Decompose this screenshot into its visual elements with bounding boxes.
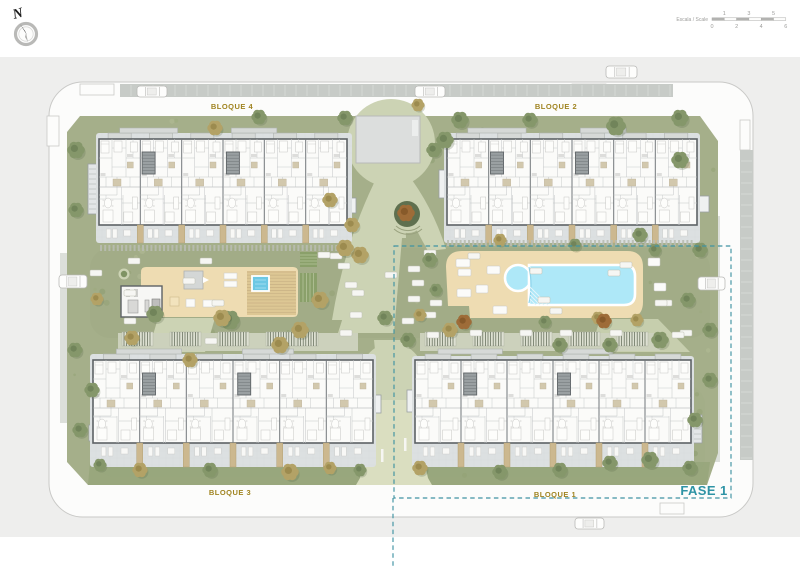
svg-text:BLOQUE 3: BLOQUE 3 <box>209 488 251 497</box>
svg-text:BLOQUE 4: BLOQUE 4 <box>211 102 254 111</box>
svg-text:0: 0 <box>710 24 713 30</box>
svg-text:3: 3 <box>747 11 750 17</box>
svg-text:2: 2 <box>735 24 738 30</box>
svg-text:BLOQUE 1: BLOQUE 1 <box>534 490 576 499</box>
svg-text:4: 4 <box>760 24 763 30</box>
svg-text:1: 1 <box>723 11 726 17</box>
svg-text:5: 5 <box>772 11 775 17</box>
svg-text:FASE 1: FASE 1 <box>680 483 727 498</box>
svg-text:Escala / Scale: Escala / Scale <box>676 17 708 23</box>
svg-text:BLOQUE 2: BLOQUE 2 <box>535 102 577 111</box>
svg-text:6: 6 <box>784 24 787 30</box>
